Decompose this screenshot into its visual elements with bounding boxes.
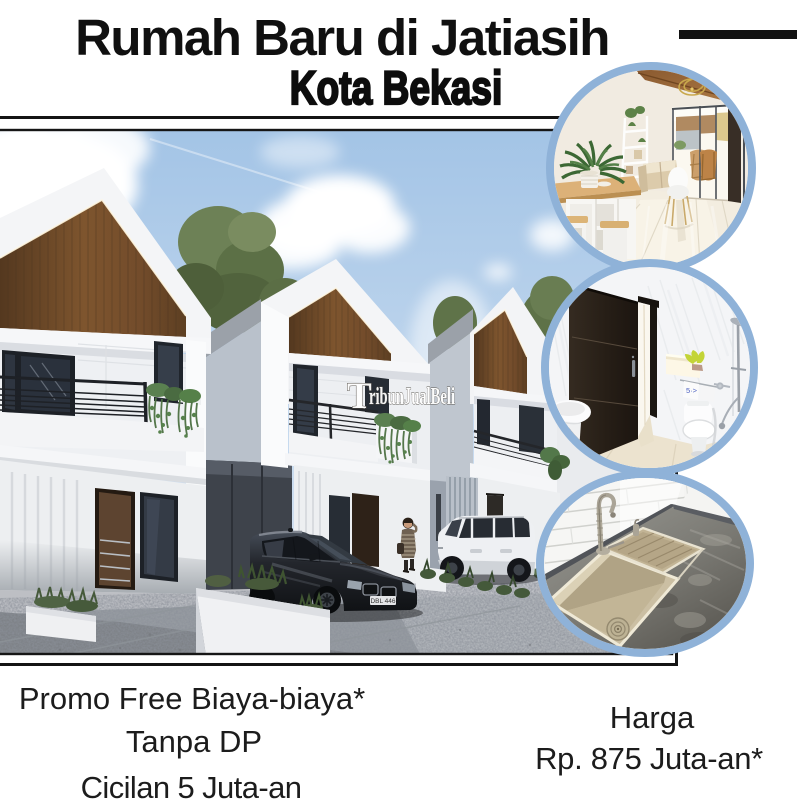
svg-text:DBL 446: DBL 446 [370,598,395,605]
svg-text:5·>: 5·> [686,386,698,395]
svg-text:ribunJualBeli: ribunJualBeli [369,384,455,410]
